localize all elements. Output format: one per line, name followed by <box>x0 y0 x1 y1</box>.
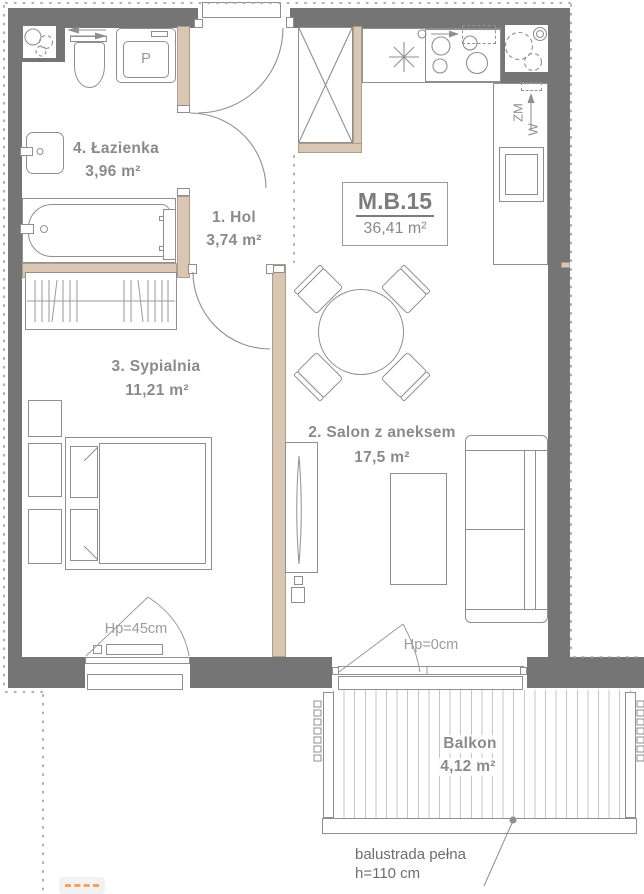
balcony-door-sill <box>338 666 524 675</box>
legend-orange-chip <box>59 877 105 894</box>
tv-speaker-tall <box>291 587 305 603</box>
partition-stub-kitchen <box>561 262 570 268</box>
room-area-hol: 3,74 m² <box>206 232 262 250</box>
bedroom-window-outer-sill <box>87 674 183 690</box>
bedroom-window-frame <box>85 657 190 664</box>
pillow-bottom <box>70 509 98 561</box>
sink-faucet <box>20 147 33 156</box>
mattress <box>99 443 206 564</box>
sofa-seat-split <box>466 529 524 530</box>
partition-hall-wardrobe-bottom <box>298 143 362 153</box>
tv-unit <box>285 442 318 573</box>
sofa-armrest-bottom <box>466 609 547 622</box>
coffee-table <box>390 473 447 585</box>
bedroom-radiator <box>106 644 163 655</box>
partition-hall-wardrobe-side <box>353 26 362 153</box>
partition-bathroom-upper <box>177 26 190 113</box>
sill-height-bedroom: Hp=45cm <box>105 621 167 637</box>
floor-plan: 4. Łazienka 3,96 m² 1. Hol 3,74 m² 3. Sy… <box>0 0 644 894</box>
sofa-armrest-top <box>466 436 547 451</box>
pillow-top <box>70 446 98 498</box>
bathroom-door-arc <box>190 113 266 188</box>
bathtub-faucet <box>20 224 34 234</box>
sofa <box>465 435 548 623</box>
balustrade-bottom-plate <box>322 818 637 834</box>
entrance-niche <box>202 2 281 18</box>
door-swing-arcs <box>190 28 283 349</box>
towel-radiator <box>163 209 176 260</box>
balcony-door-outer-sill <box>338 676 523 690</box>
partition-bedroom-salon <box>272 264 286 657</box>
balustrade-note-line2: h=110 cm <box>355 865 420 882</box>
room-area-salon: 17,5 m² <box>354 449 410 467</box>
kitchen-sink-box <box>505 25 548 72</box>
entrance-door-arc <box>198 28 283 113</box>
hall-wardrobe <box>298 27 353 143</box>
nightstand-top <box>28 443 62 497</box>
wall-bottom-c <box>527 657 644 688</box>
bedroom-door-jamb-left <box>188 264 197 274</box>
room-area-sypialnia: 11,21 m² <box>125 382 189 400</box>
sill-height-balcony: Hp=0cm <box>404 637 458 653</box>
wall-right <box>548 8 570 688</box>
bathtub-inner <box>28 204 170 257</box>
bathroom-door-jamb-top <box>177 105 190 113</box>
wall-top-a <box>8 8 198 28</box>
nightstand-bottom <box>28 509 62 564</box>
entrance-jamb-right <box>286 17 294 28</box>
wall-bottom-b <box>190 657 332 688</box>
toilet-bowl <box>74 42 105 88</box>
balustrade-post-right <box>625 692 636 818</box>
unit-code: M.B.15 <box>356 190 434 217</box>
balcony-door-jamb-right <box>520 667 527 675</box>
bedroom-desk <box>28 400 62 437</box>
room-label-sypialnia: 3. Sypialnia <box>112 358 201 376</box>
room-area-balkon: 4,12 m² <box>437 758 499 776</box>
washing-machine-label: P <box>137 50 155 67</box>
room-label-balkon: Balkon <box>440 735 499 753</box>
towel-radiator-knob-top <box>159 216 164 221</box>
sofa-backrest-line2 <box>535 451 536 609</box>
bedroom-radiator-valve <box>93 645 102 654</box>
bathroom-door-jamb-bottom <box>177 188 190 196</box>
room-label-hol: 1. Hol <box>212 209 256 227</box>
room-area-lazienka: 3,96 m² <box>85 163 141 181</box>
kitchen-hood-dashed <box>462 25 496 44</box>
bedroom-door-arc <box>193 272 270 349</box>
tv-speaker-small <box>294 576 303 585</box>
entrance-jamb-left <box>194 19 203 28</box>
legend-orange-dash <box>65 884 99 887</box>
balustrade-note-line1: balustrada pełna <box>355 846 466 863</box>
fridge-inner <box>505 154 538 195</box>
riser-label-zm: ZM <box>511 99 526 127</box>
balustrade-post-left <box>323 692 334 818</box>
room-label-salon: 2. Salon z aneksem <box>308 424 456 442</box>
dining-table <box>318 289 404 375</box>
washing-machine-panel <box>151 31 168 37</box>
sofa-backrest-line1 <box>524 451 525 609</box>
pipe-shaft-box <box>23 26 56 58</box>
unit-info-box: M.B.15 36,41 m² <box>342 182 448 246</box>
bedroom-wardrobe <box>25 272 177 330</box>
wall-bottom-a <box>8 657 85 688</box>
wall-left <box>8 8 22 688</box>
towel-radiator-knob-bottom <box>159 246 164 251</box>
partition-cap <box>273 265 285 273</box>
dishwasher-dashed-mark <box>521 82 542 91</box>
balcony-deck <box>333 690 637 818</box>
riser-label-w: W <box>526 123 541 137</box>
balcony-door-jamb-left <box>332 667 339 675</box>
unit-area: 36,41 m² <box>363 220 426 238</box>
room-label-lazienka: 4. Łazienka <box>73 140 159 158</box>
